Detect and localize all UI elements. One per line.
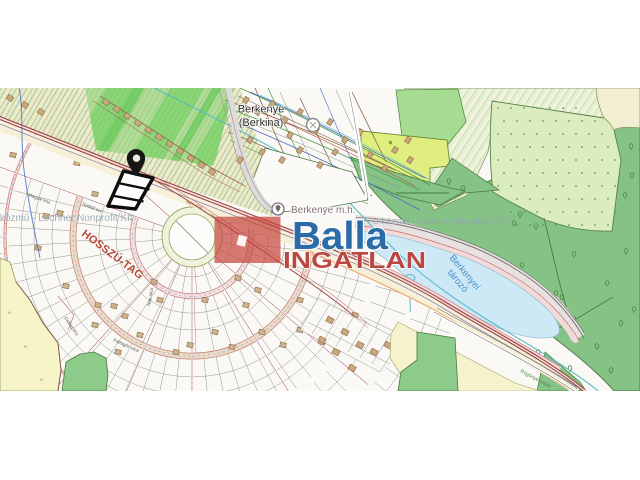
svg-text:H: H [24,344,27,349]
svg-text:e-közmű - Lechner Nonprofit Kf: e-közmű - Lechner Nonprofit Kft [0,213,133,224]
svg-text:INGATLAN: INGATLAN [283,247,426,273]
svg-text:H: H [40,377,43,382]
svg-text:Berkenye: Berkenye [238,104,284,116]
svg-text:(Berkina): (Berkina) [239,117,284,129]
svg-text:H: H [8,310,11,315]
svg-text:e-közmű - Lechner Nonprofit Kf: e-közmű - Lechner Nonprofit Kft [373,216,508,227]
